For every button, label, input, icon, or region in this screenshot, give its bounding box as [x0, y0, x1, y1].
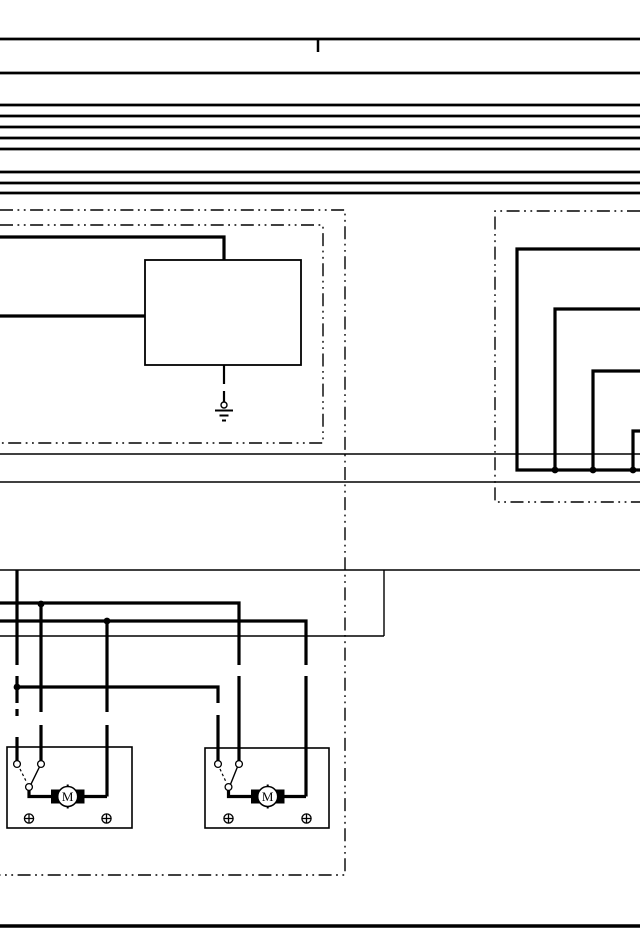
- wire: [555, 309, 640, 470]
- screw-terminal-icon: [224, 814, 233, 823]
- switch-contact: [38, 761, 45, 768]
- junction-dot: [38, 601, 45, 608]
- junction-dot: [630, 467, 637, 474]
- wire: [0, 237, 224, 260]
- junction-dot: [14, 684, 21, 691]
- motor-unit: M: [205, 748, 329, 828]
- motor-feed-wire: [229, 790, 252, 797]
- wires: [0, 237, 640, 797]
- switch-arm: [31, 767, 40, 784]
- motor-label: M: [262, 789, 274, 804]
- thin-wires: [0, 454, 640, 636]
- junction-dot: [552, 467, 559, 474]
- switch-linkage-dash: [20, 769, 27, 783]
- switch-common-contact: [26, 784, 33, 791]
- screw-terminal-icon: [24, 814, 33, 823]
- switch-contact: [236, 761, 243, 768]
- screw-terminal-icon: [102, 814, 111, 823]
- wire: [0, 621, 306, 665]
- wiring-diagram-page: MM: [0, 0, 640, 950]
- wire: [0, 603, 239, 665]
- switch-common-contact: [225, 784, 232, 791]
- wire: [517, 249, 640, 470]
- junction-dot: [590, 467, 597, 474]
- ground-eyelet: [221, 402, 227, 408]
- power-bus-lines: [0, 39, 640, 193]
- junction-dot: [104, 618, 111, 625]
- wiring-diagram-canvas: MM: [0, 0, 640, 950]
- wire: [633, 431, 640, 470]
- wire: [17, 687, 218, 703]
- motor-unit: M: [7, 747, 132, 828]
- motor-label: M: [62, 789, 74, 804]
- switch-contact: [14, 761, 21, 768]
- screw-terminal-icon: [302, 814, 311, 823]
- motor-feed-wire: [29, 790, 51, 797]
- switch-linkage-dash: [220, 769, 227, 783]
- control-unit-box: [145, 260, 301, 365]
- harness-boundaries: [0, 210, 640, 875]
- switch-contact: [215, 761, 222, 768]
- ground-symbol: [215, 365, 233, 421]
- switch-arm: [231, 767, 238, 784]
